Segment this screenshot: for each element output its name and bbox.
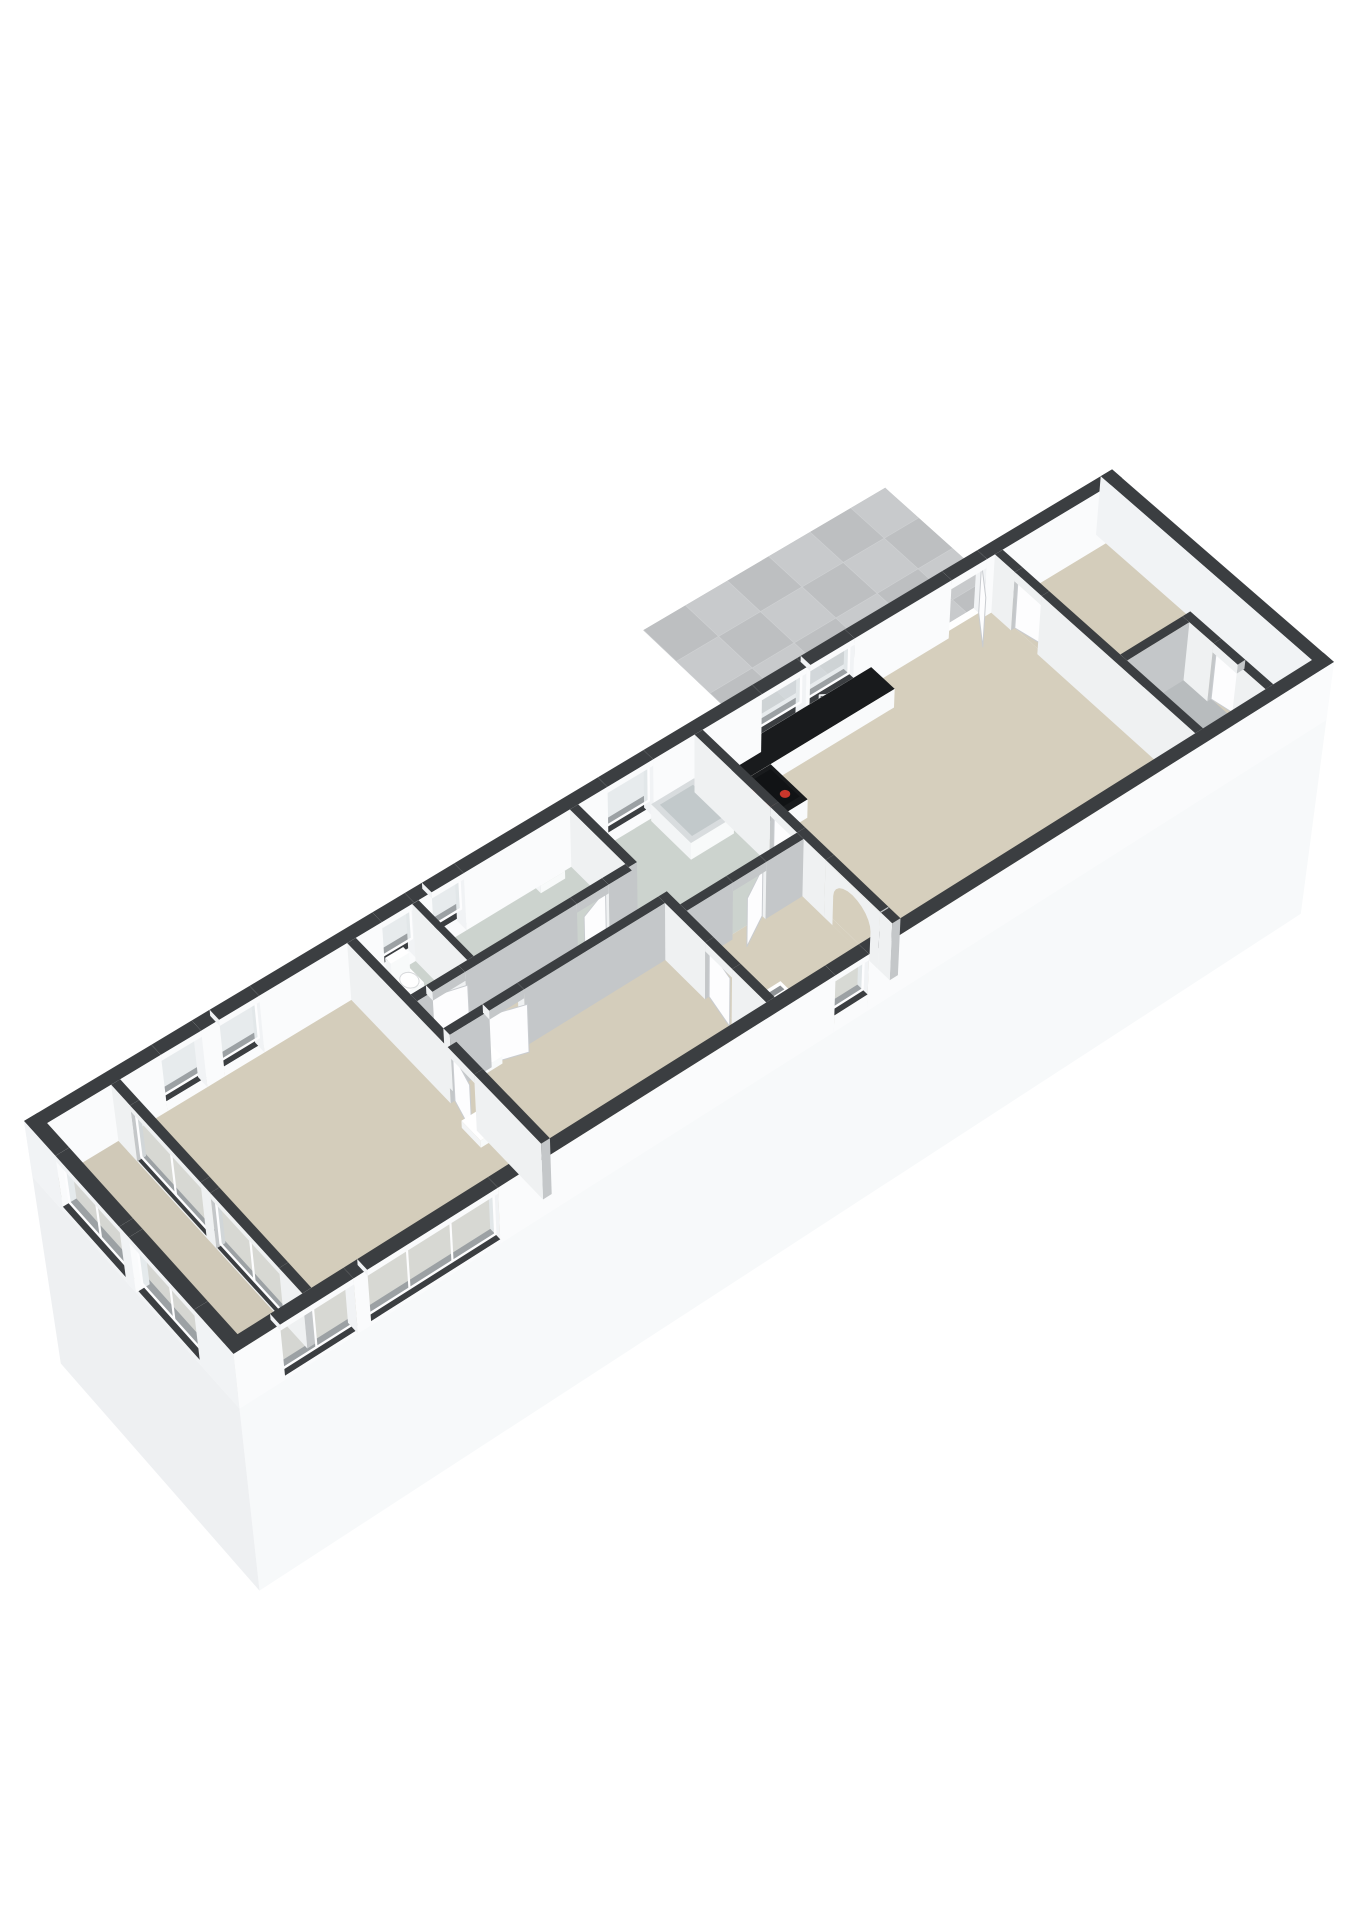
floorplan-canvas — [0, 0, 1358, 1920]
floorplan-3d-scene — [0, 0, 1358, 1920]
